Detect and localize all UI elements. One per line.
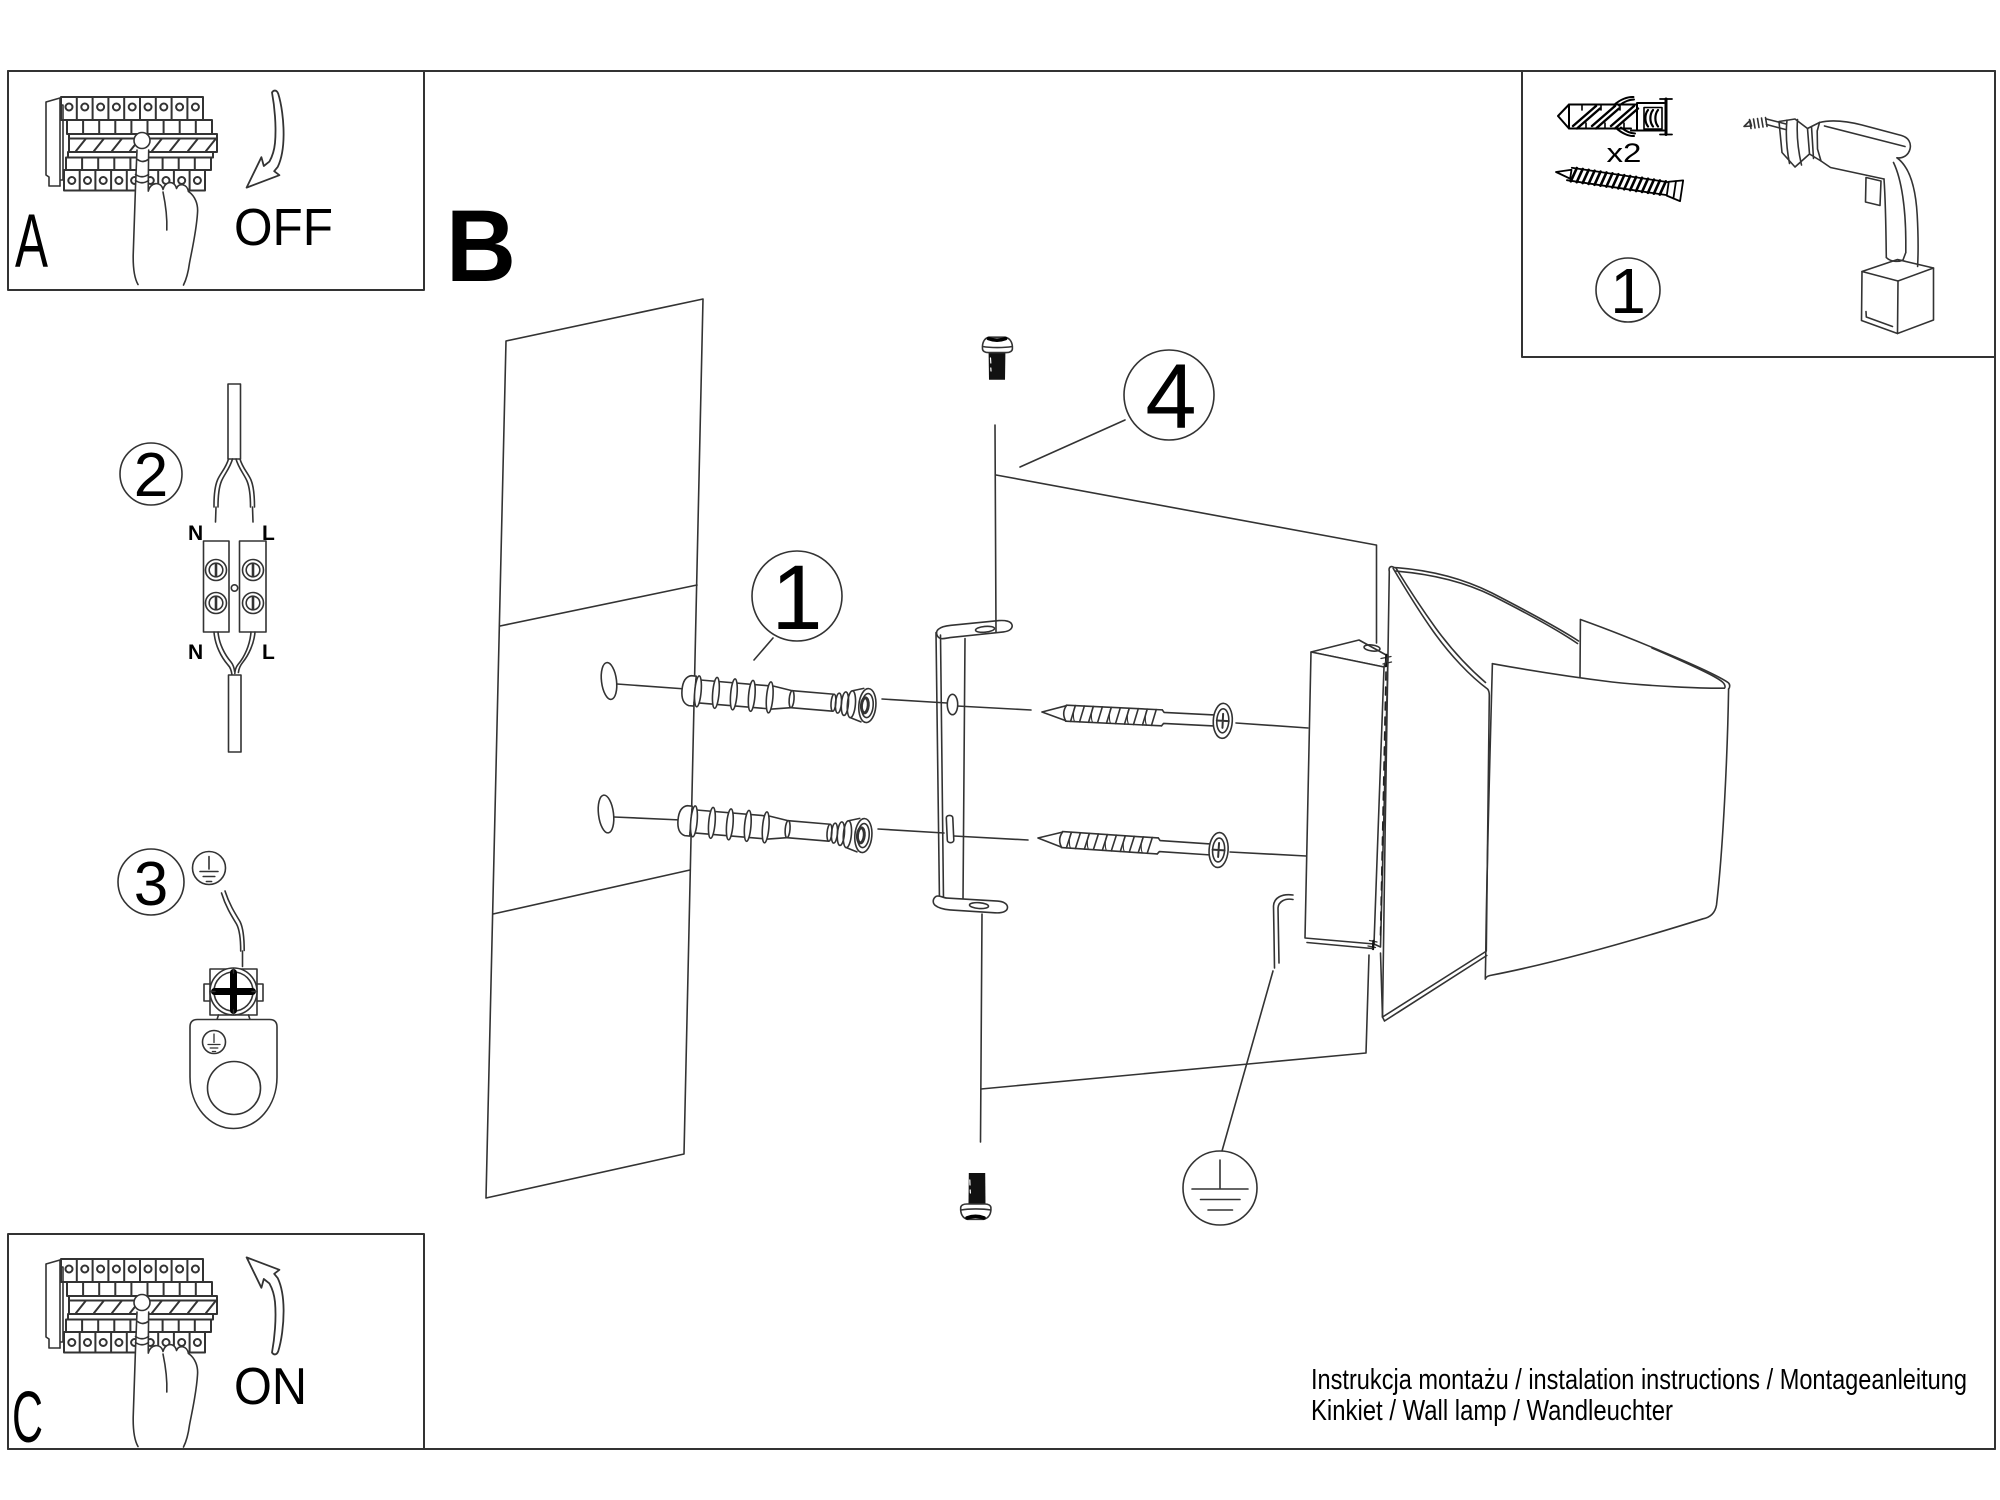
svg-text:B: B: [446, 189, 516, 303]
svg-text:ON: ON: [234, 1357, 307, 1415]
svg-text:2: 2: [134, 441, 168, 510]
svg-text:3: 3: [134, 850, 168, 919]
svg-text:OFF: OFF: [234, 198, 333, 256]
svg-text:A: A: [15, 199, 48, 284]
svg-text:Kinkiet / Wall lamp / Wandleuc: Kinkiet / Wall lamp / Wandleuchter: [1311, 1395, 1673, 1427]
svg-text:1: 1: [771, 547, 822, 649]
svg-text:4: 4: [1145, 346, 1196, 448]
svg-text:x2: x2: [1607, 138, 1642, 168]
svg-text:Instrukcja montażu / instalati: Instrukcja montażu / instalation instruc…: [1311, 1364, 1967, 1396]
svg-text:N: N: [188, 522, 203, 545]
svg-text:N: N: [188, 641, 203, 664]
svg-text:L: L: [262, 641, 275, 664]
svg-text:C: C: [12, 1378, 43, 1458]
svg-text:1: 1: [1610, 255, 1646, 327]
